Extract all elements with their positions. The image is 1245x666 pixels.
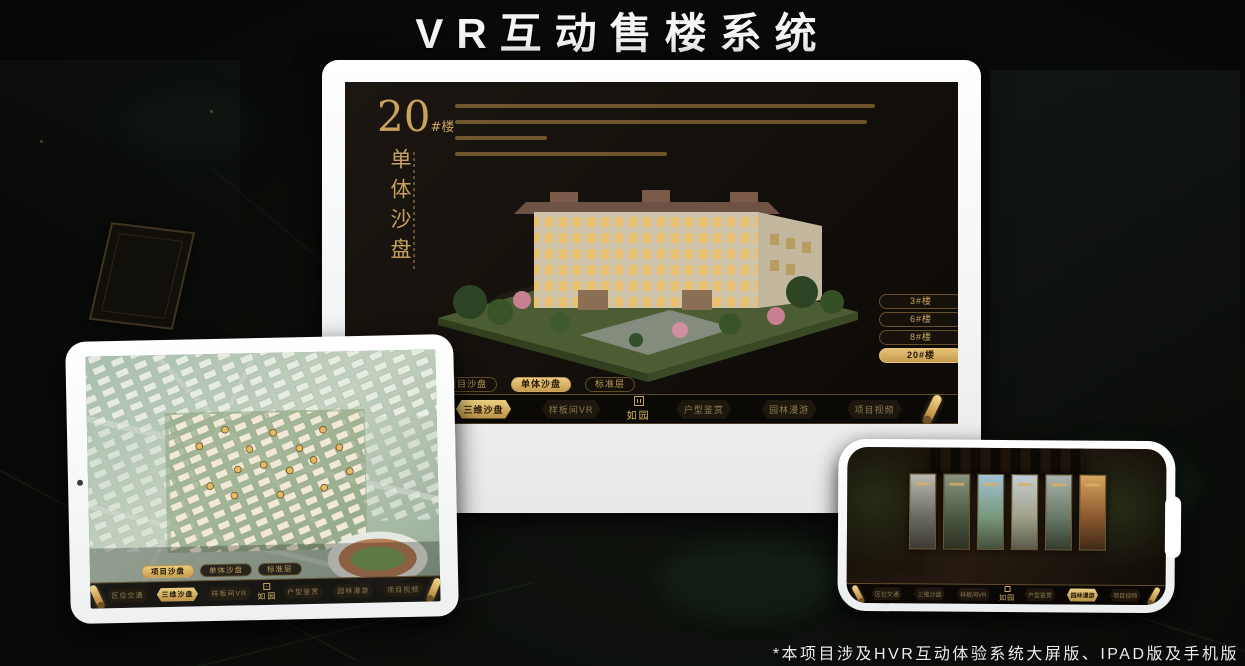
tablet-screen: 项目沙盘 单体沙盘 标准层 区位交通 三维沙盘 样板间VR 如园 户型鉴赏 园林…: [85, 349, 440, 608]
map-label-speck: [40, 140, 43, 143]
nav-item[interactable]: 区位交通: [869, 587, 905, 600]
scroll-menu-icon[interactable]: [426, 576, 441, 601]
nav-item[interactable]: 三维沙盘: [911, 587, 947, 600]
scroll-menu-icon[interactable]: [922, 394, 943, 424]
seal-icon: [1004, 586, 1010, 592]
building-button[interactable]: 8#楼: [879, 330, 958, 345]
footnote: *本项目涉及HVR互动体验系统大屏版、IPAD版及手机版: [773, 640, 1239, 664]
nav-item[interactable]: 样板间VR: [537, 400, 606, 419]
phone-navbar: 区位交通 三维沙盘 样板间VR 如园 户型鉴赏 园林漫游 项目视频: [846, 583, 1165, 605]
nav-item-active[interactable]: 园林漫游: [1064, 588, 1100, 601]
nav-item[interactable]: 园林漫游: [757, 400, 821, 419]
view-tab[interactable]: 标准层: [585, 377, 635, 392]
nav-item[interactable]: 区位交通: [103, 588, 151, 603]
floor-label: 20#楼: [377, 96, 454, 138]
building-button[interactable]: 3#楼: [879, 294, 958, 309]
description-text-line: [455, 136, 547, 140]
building-button[interactable]: 6#楼: [879, 312, 958, 327]
pavilion-beam: [930, 447, 1083, 473]
floor-number: 20: [377, 92, 430, 141]
map-greenery: [660, 540, 840, 620]
scroll-menu-icon[interactable]: [851, 584, 865, 603]
page: VR互动售楼系统 20#楼 单体沙盘: [0, 0, 1245, 666]
seal-icon: [263, 583, 270, 590]
nav-item-active[interactable]: 三维沙盘: [153, 587, 201, 602]
brand-logo-text: 如园: [999, 593, 1015, 603]
tablet-device: 项目沙盘 单体沙盘 标准层 区位交通 三维沙盘 样板间VR 如园 户型鉴赏 园林…: [65, 334, 459, 624]
nav-item[interactable]: 园林漫游: [329, 583, 377, 598]
gallery-panel[interactable]: [943, 474, 971, 550]
view-tab[interactable]: 单体沙盘: [200, 563, 252, 577]
brand-logo-text: 如园: [627, 407, 651, 422]
description-text-line: [455, 120, 867, 124]
section-title-vertical: 单体沙盘: [385, 148, 415, 268]
page-title: VR互动售楼系统: [0, 0, 1245, 61]
tablet-camera-icon: [77, 480, 83, 486]
brand-logo: 如园: [627, 396, 651, 422]
nav-item[interactable]: 样板间VR: [954, 588, 992, 601]
view-tab[interactable]: 标准层: [258, 562, 302, 576]
seal-icon: [634, 396, 644, 406]
nav-item[interactable]: 项目视频: [1107, 589, 1143, 602]
phone-screen: 区位交通 三维沙盘 样板间VR 如园 户型鉴赏 园林漫游 项目视频: [846, 447, 1166, 605]
section-title-english-line: [413, 152, 415, 272]
map-buildings: [990, 70, 1240, 450]
gallery-panel[interactable]: [1011, 474, 1039, 550]
map-label-speck: [210, 110, 213, 113]
nav-item[interactable]: 户型鉴赏: [279, 584, 327, 599]
scroll-menu-icon[interactable]: [89, 584, 106, 609]
nav-item[interactable]: 项目视频: [842, 400, 906, 419]
nav-item-active[interactable]: 三维沙盘: [452, 400, 516, 419]
gallery-panel[interactable]: [909, 473, 937, 549]
nav-item[interactable]: 样板间VR: [203, 586, 255, 601]
building-button-active[interactable]: 20#楼: [879, 348, 958, 363]
scroll-menu-icon[interactable]: [1147, 586, 1161, 605]
nav-item[interactable]: 户型鉴赏: [672, 400, 736, 419]
description-text-line: [455, 104, 875, 108]
building-render-3d: [430, 150, 870, 388]
brand-logo: 如园: [257, 583, 277, 602]
phone-notch: [1165, 496, 1181, 558]
view-tab-active[interactable]: 单体沙盘: [511, 377, 571, 392]
gallery-panel[interactable]: [1079, 475, 1107, 551]
nav-item[interactable]: 户型鉴赏: [1022, 588, 1058, 601]
nav-item[interactable]: 项目视频: [379, 582, 427, 597]
brand-logo-text: 如园: [257, 591, 277, 602]
gallery-panel[interactable]: [1045, 474, 1073, 550]
view-tab-active[interactable]: 项目沙盘: [142, 564, 194, 578]
phone-device: 区位交通 三维沙盘 样板间VR 如园 户型鉴赏 园林漫游 项目视频: [837, 439, 1175, 613]
floor-suffix: #楼: [430, 120, 454, 135]
gallery-panel[interactable]: [977, 474, 1005, 550]
brand-logo: 如园: [999, 586, 1015, 603]
